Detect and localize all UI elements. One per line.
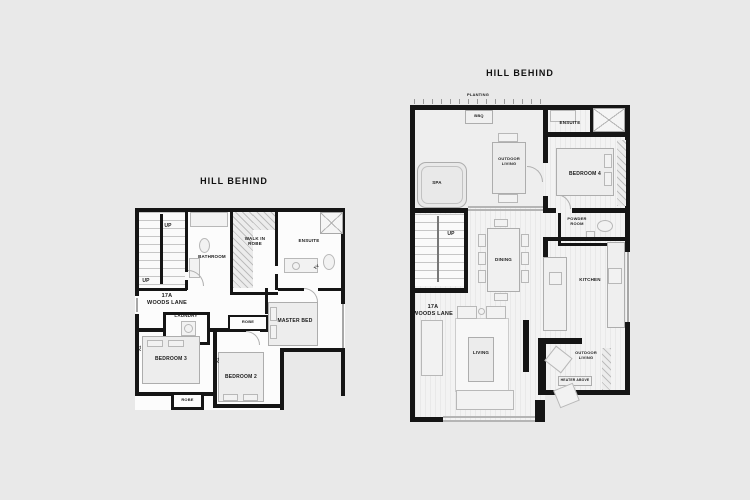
wall-segment (278, 288, 304, 291)
glass-door (443, 416, 537, 418)
chair (498, 133, 518, 142)
armchair (457, 306, 477, 319)
room-label-kitchen: KITCHEN (568, 277, 612, 282)
wall-segment (280, 348, 284, 410)
planting-label: PLANTING (455, 93, 501, 98)
basin (292, 262, 300, 270)
wall-segment (464, 213, 468, 293)
bbq-label: BBQ (465, 114, 493, 119)
wall-segment (523, 320, 529, 372)
stair-rail (437, 216, 439, 282)
wall-segment (341, 348, 345, 396)
washer-door (184, 324, 193, 333)
toilet (199, 238, 210, 253)
pillow (168, 340, 184, 347)
wall-segment (535, 400, 545, 422)
room-label-bedroom-2: BEDROOM 2 (215, 374, 267, 380)
right-plan-title: HILL BEHIND (460, 68, 580, 79)
pillow (147, 340, 163, 347)
left-plan-address: 17AWOODS LANE (139, 293, 195, 306)
room-label-dining: DINING (487, 257, 520, 262)
room-label-powder-room: POWDER ROOM (558, 217, 596, 227)
wall-segment (275, 208, 278, 266)
room-label-master-bed: MASTER BED (272, 318, 318, 324)
planting-ticks (414, 99, 544, 104)
pillow (270, 325, 277, 339)
armchair (486, 306, 506, 319)
room-label-bedroom-3: BEDROOM 3 (145, 356, 197, 362)
shower (593, 108, 625, 132)
toilet (323, 254, 335, 270)
chair (494, 293, 508, 301)
room-label-spa: SPA (417, 180, 457, 185)
room-label-bathroom: BATHROOM (190, 254, 234, 259)
kitchen-island (543, 257, 567, 331)
wall-segment (213, 328, 217, 408)
room-label-robe: ROBE (228, 320, 268, 325)
room-label-robe: ROBE (171, 398, 204, 403)
glass-door (443, 420, 537, 422)
wall-segment (548, 237, 630, 241)
sofa (456, 390, 514, 410)
wall-segment (543, 132, 630, 137)
chair (521, 270, 529, 283)
wall-segment (135, 314, 139, 396)
wall-segment (410, 288, 468, 293)
pillow (243, 394, 258, 401)
shower (320, 212, 343, 234)
wall-segment (625, 322, 630, 395)
wall-segment (185, 208, 188, 272)
chair (494, 219, 508, 227)
tv-label: TV (137, 342, 142, 354)
chair (478, 234, 486, 247)
pillow (223, 394, 238, 401)
room-label-ensuite: ENSUITE (548, 120, 592, 125)
window (342, 304, 344, 348)
glass-door (468, 209, 543, 211)
wall-segment (543, 208, 556, 213)
address-line-2: WOODS LANE (147, 300, 187, 306)
sofa (421, 320, 443, 376)
room-label-living: LIVING (466, 350, 496, 355)
stairs (415, 214, 464, 286)
room-label-walk-in-robe: WALK IN ROBE (237, 236, 273, 247)
chair (521, 252, 529, 265)
wall-segment (280, 348, 345, 352)
window (627, 252, 629, 322)
wall-segment (135, 392, 173, 396)
planter-strip (602, 348, 611, 390)
pillow (604, 154, 612, 168)
up-label: UP (160, 223, 176, 229)
wall-segment (558, 243, 610, 246)
chair (478, 252, 486, 265)
room-label-bedroom-4: BEDROOM 4 (556, 171, 614, 177)
wall-segment (410, 417, 443, 422)
kitchen-counter (607, 242, 625, 328)
side-table (478, 308, 485, 315)
wall-segment (410, 208, 468, 213)
bathtub (190, 212, 228, 227)
address-line-1: 17A (162, 293, 173, 299)
room-label-laundry: LAUNDRY (166, 313, 206, 318)
wall-segment (572, 208, 630, 213)
wall-segment (213, 404, 284, 408)
wardrobe-hatch (253, 212, 275, 230)
outdoor-table (492, 142, 526, 194)
wall-segment (230, 292, 278, 295)
chair (478, 270, 486, 283)
address-line-1: 17A (428, 304, 439, 310)
window (136, 298, 138, 312)
wall-segment (538, 338, 546, 395)
toilet (597, 220, 613, 232)
room-label-ensuite: ENSUITE (288, 238, 330, 243)
tv-label: TV (215, 354, 220, 366)
right-plan-address: 17AWOODS LANE (410, 304, 456, 317)
wall-segment (135, 288, 187, 291)
left-plan-title: HILL BEHIND (174, 176, 294, 187)
glass-door (468, 206, 543, 208)
room-label-outdoor-living-upper: OUTDOOR LIVING (490, 157, 528, 167)
wardrobe-hatch (617, 140, 626, 206)
address-line-2: WOODS LANE (413, 311, 453, 317)
wardrobe-hatch (233, 212, 253, 288)
wall-segment (318, 288, 345, 291)
up-label: UP (138, 278, 154, 284)
coffee-table (468, 337, 494, 382)
up-label: UP (443, 231, 459, 237)
chair (498, 194, 518, 203)
wall-segment (546, 338, 582, 344)
heater-label: HEATER ABOVE (561, 378, 590, 382)
sink (549, 272, 562, 285)
chair (521, 234, 529, 247)
floor-plan-canvas: HILL BEHIND UP UP BATHROOM WALK IN ROBE … (0, 0, 750, 500)
